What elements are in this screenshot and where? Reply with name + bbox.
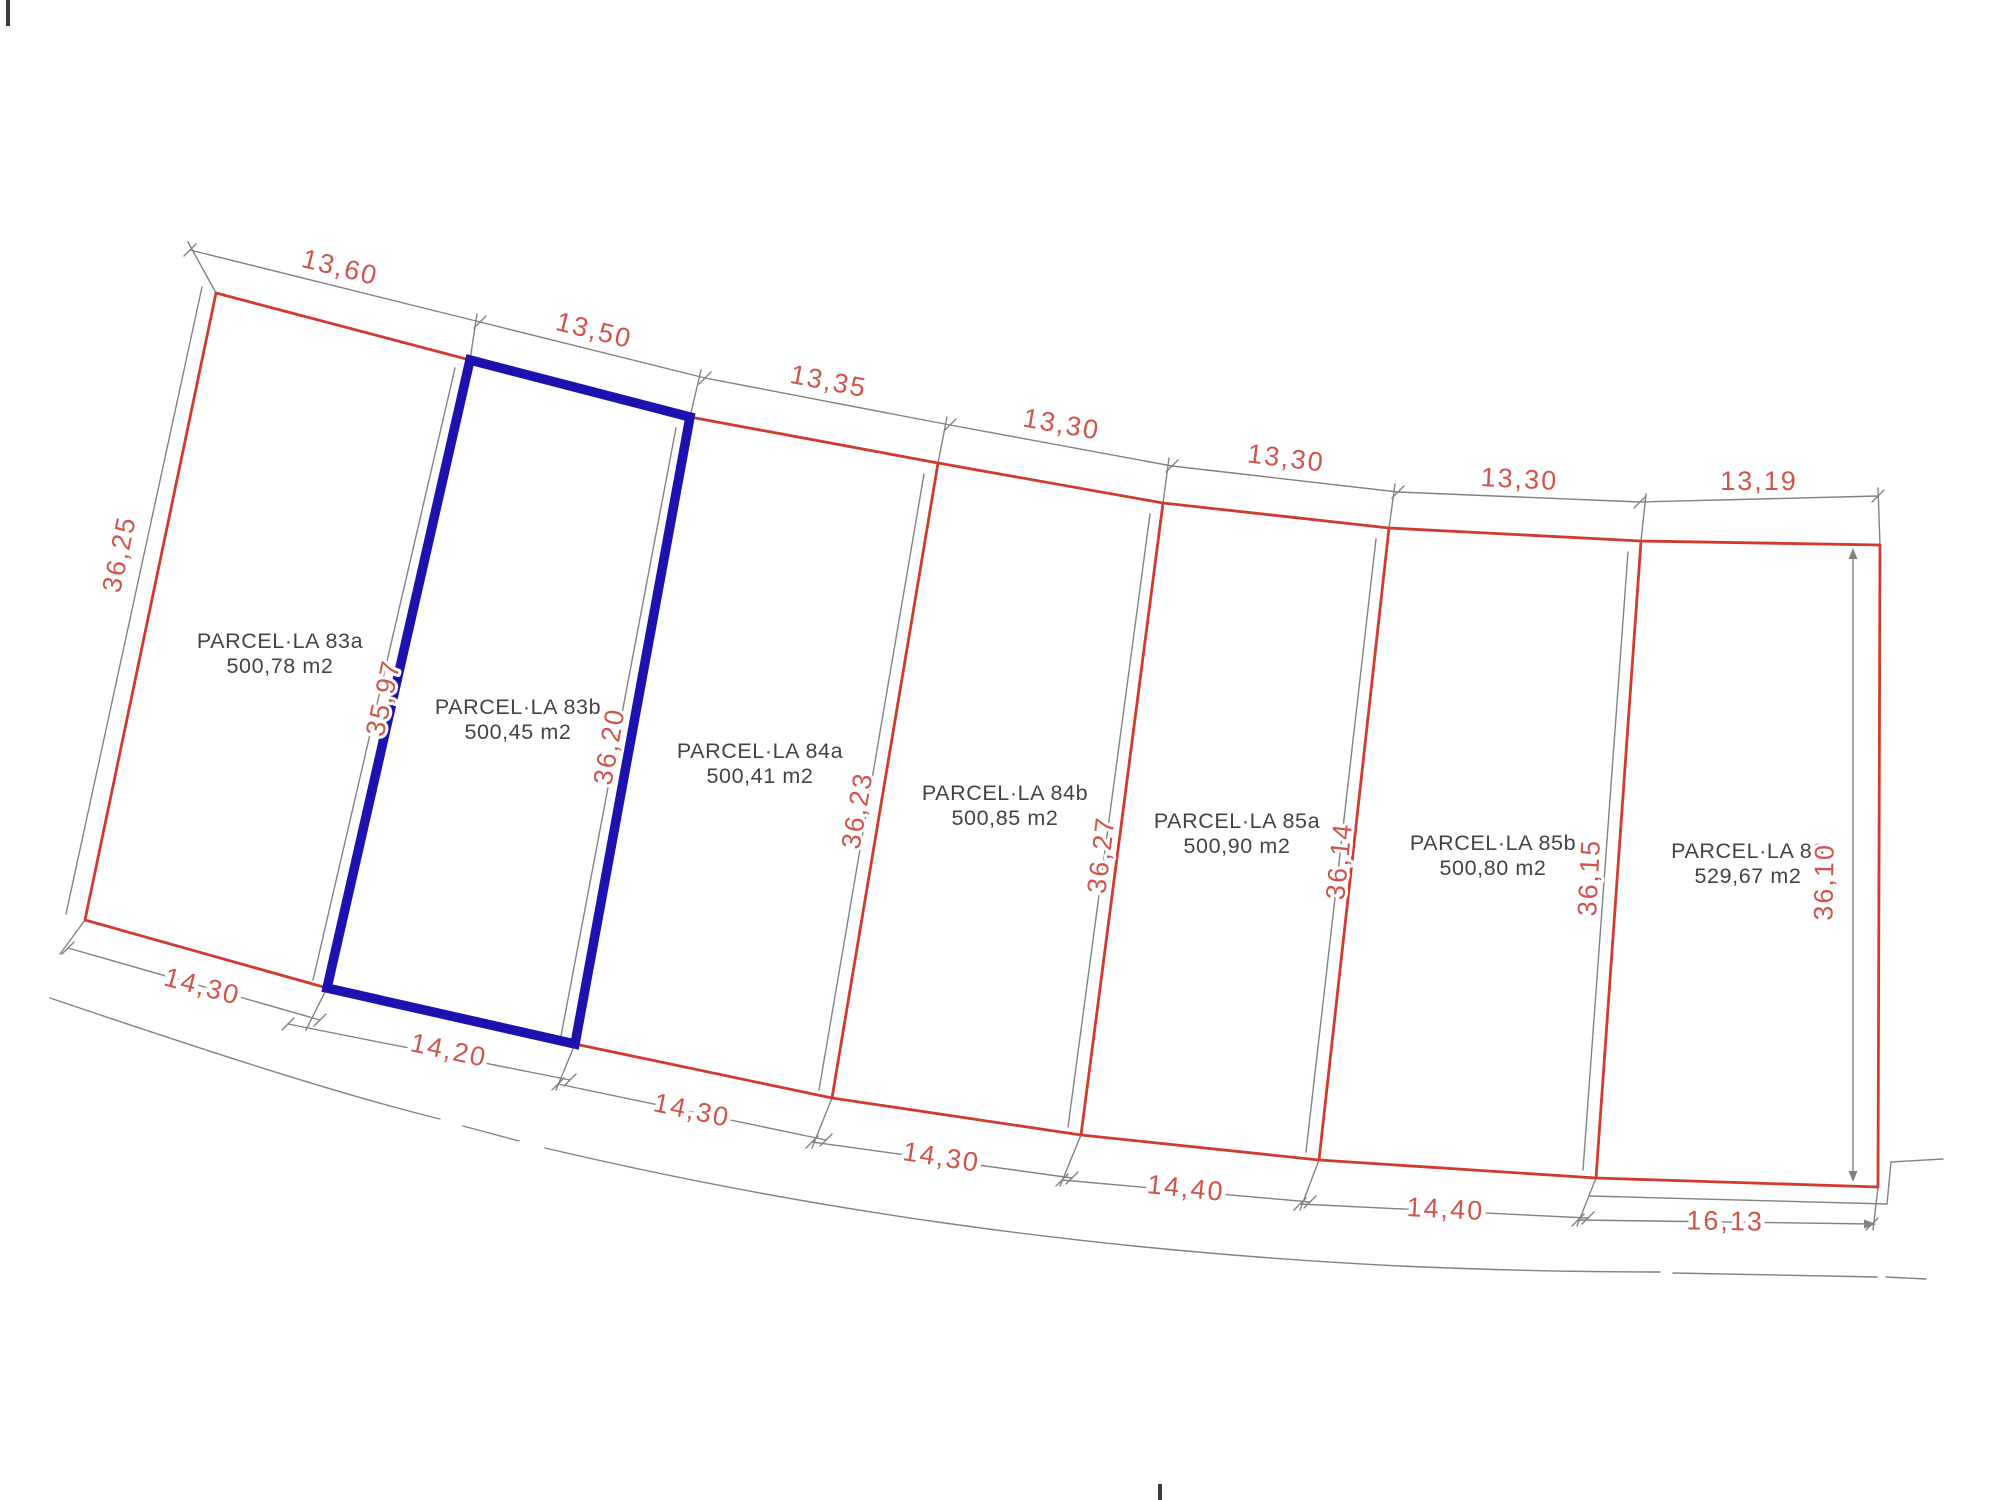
parcel-label-86: PARCEL·LA 86 529,67 m2 (1671, 839, 1825, 888)
svg-text:36,14: 36,14 (1320, 821, 1358, 901)
svg-text:PARCEL·LA 84a: PARCEL·LA 84a (677, 739, 843, 763)
parcel-label-85b: PARCEL·LA 85b 500,80 m2 (1410, 831, 1576, 880)
svg-text:PARCEL·LA 85a: PARCEL·LA 85a (1154, 809, 1320, 833)
svg-text:13,50: 13,50 (553, 306, 636, 354)
svg-text:36,10: 36,10 (1808, 843, 1839, 921)
crop-mark-top-left (6, 0, 10, 26)
parcel-label-84a: PARCEL·LA 84a 500,41 m2 (677, 739, 843, 788)
site-plan: PARCEL·LA 83a 500,78 m2 PARCEL·LA 83b 50… (0, 0, 2000, 1500)
svg-text:500,90 m2: 500,90 m2 (1183, 834, 1290, 858)
parcel-label-83b: PARCEL·LA 83b 500,45 m2 (435, 695, 601, 744)
svg-text:36,15: 36,15 (1572, 838, 1606, 917)
svg-text:13,19: 13,19 (1720, 466, 1798, 496)
svg-text:14,40: 14,40 (1406, 1192, 1485, 1226)
svg-text:PARCEL·LA 83b: PARCEL·LA 83b (435, 695, 601, 719)
sidewalk-step-line (1590, 1159, 1943, 1204)
svg-text:16,13: 16,13 (1686, 1205, 1764, 1236)
svg-text:PARCEL·LA 86: PARCEL·LA 86 (1671, 839, 1825, 863)
svg-text:13,30: 13,30 (1246, 438, 1327, 477)
svg-text:13,30: 13,30 (1480, 462, 1559, 496)
svg-text:14,30: 14,30 (901, 1136, 982, 1178)
parcel-dividers (327, 360, 1641, 1178)
svg-text:PARCEL·LA 83a: PARCEL·LA 83a (197, 629, 363, 653)
svg-text:14,40: 14,40 (1146, 1169, 1226, 1207)
svg-text:14,20: 14,20 (408, 1027, 490, 1072)
parcel-label-85a: PARCEL·LA 85a 500,90 m2 (1154, 809, 1320, 858)
svg-text:500,78 m2: 500,78 m2 (226, 654, 333, 678)
svg-text:14,30: 14,30 (651, 1087, 733, 1132)
svg-text:PARCEL·LA 85b: PARCEL·LA 85b (1410, 831, 1576, 855)
svg-text:35,97: 35,97 (360, 657, 407, 739)
svg-text:14,30: 14,30 (161, 962, 244, 1011)
svg-text:500,85 m2: 500,85 m2 (951, 806, 1058, 830)
parcel-label-83a: PARCEL·LA 83a 500,78 m2 (197, 629, 363, 678)
parcel-block-boundary (85, 293, 1880, 1187)
svg-text:500,41 m2: 500,41 m2 (706, 764, 813, 788)
svg-text:13,60: 13,60 (299, 243, 382, 291)
dimension-tick-marks (62, 244, 1884, 1230)
svg-text:13,30: 13,30 (1021, 403, 1103, 446)
svg-text:36,25: 36,25 (96, 513, 141, 595)
svg-text:500,45 m2: 500,45 m2 (464, 720, 571, 744)
svg-text:500,80 m2: 500,80 m2 (1439, 856, 1546, 880)
crop-mark-bottom-center (1158, 1484, 1162, 1500)
parcel-label-84b: PARCEL·LA 84b 500,85 m2 (922, 781, 1088, 830)
svg-text:36,23: 36,23 (836, 770, 879, 852)
road-edge-curve (50, 998, 1926, 1279)
svg-text:PARCEL·LA 84b: PARCEL·LA 84b (922, 781, 1088, 805)
svg-text:529,67 m2: 529,67 m2 (1694, 864, 1801, 888)
